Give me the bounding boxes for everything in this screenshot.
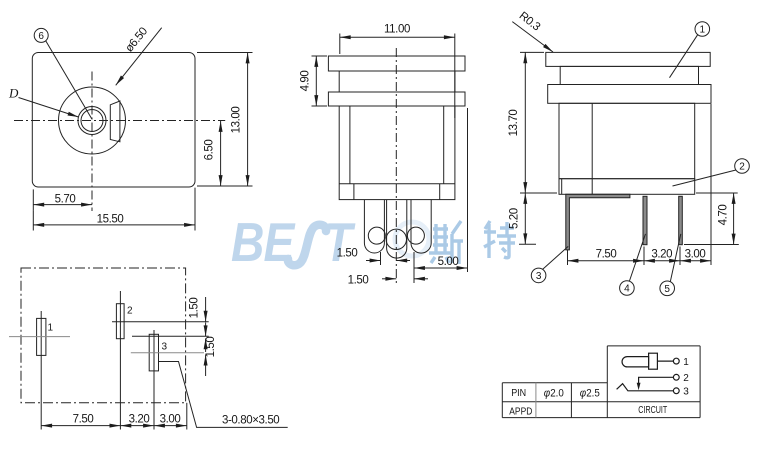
svg-text:CIRCUIT: CIRCUIT — [638, 404, 667, 416]
svg-text:φ2.5: φ2.5 — [580, 387, 600, 399]
svg-text:1: 1 — [48, 323, 54, 334]
svg-text:1.50: 1.50 — [337, 248, 358, 260]
svg-text:3.20: 3.20 — [651, 248, 672, 260]
svg-text:5: 5 — [664, 284, 670, 295]
svg-text:5.70: 5.70 — [55, 193, 76, 205]
svg-text:4.90: 4.90 — [300, 71, 312, 92]
svg-text:1.50: 1.50 — [348, 274, 369, 286]
svg-text:3-0.80×3.50: 3-0.80×3.50 — [222, 415, 279, 427]
svg-text:D: D — [8, 86, 19, 101]
svg-text:1.50: 1.50 — [205, 337, 217, 358]
svg-text:7.50: 7.50 — [73, 413, 94, 425]
svg-text:φ2.0: φ2.0 — [544, 387, 564, 399]
svg-text:1.50: 1.50 — [189, 298, 201, 319]
svg-text:PIN: PIN — [511, 387, 526, 399]
svg-text:T: T — [324, 211, 356, 273]
svg-text:4.70: 4.70 — [717, 205, 729, 226]
svg-text:3.00: 3.00 — [160, 413, 181, 425]
svg-text:6.50: 6.50 — [204, 140, 216, 161]
svg-text:2: 2 — [683, 373, 689, 384]
svg-text:1: 1 — [683, 357, 689, 368]
svg-text:2: 2 — [739, 162, 745, 173]
svg-text:2: 2 — [127, 306, 133, 317]
svg-text:13.00: 13.00 — [231, 107, 243, 134]
svg-text:APPD: APPD — [509, 405, 532, 417]
svg-text:3.20: 3.20 — [129, 413, 150, 425]
svg-text:1: 1 — [700, 25, 706, 36]
svg-text:6: 6 — [38, 31, 44, 42]
svg-text:7.50: 7.50 — [596, 248, 617, 260]
svg-text:3: 3 — [536, 271, 542, 282]
svg-text:3: 3 — [162, 342, 168, 353]
svg-text:5.20: 5.20 — [509, 208, 521, 229]
svg-text:11.00: 11.00 — [384, 24, 410, 36]
svg-text:13.70: 13.70 — [508, 110, 520, 137]
svg-text:3.00: 3.00 — [685, 248, 706, 260]
svg-text:15.50: 15.50 — [97, 214, 124, 226]
svg-text:3: 3 — [683, 387, 689, 398]
svg-text:4: 4 — [624, 284, 630, 295]
svg-text:5.00: 5.00 — [438, 256, 459, 268]
